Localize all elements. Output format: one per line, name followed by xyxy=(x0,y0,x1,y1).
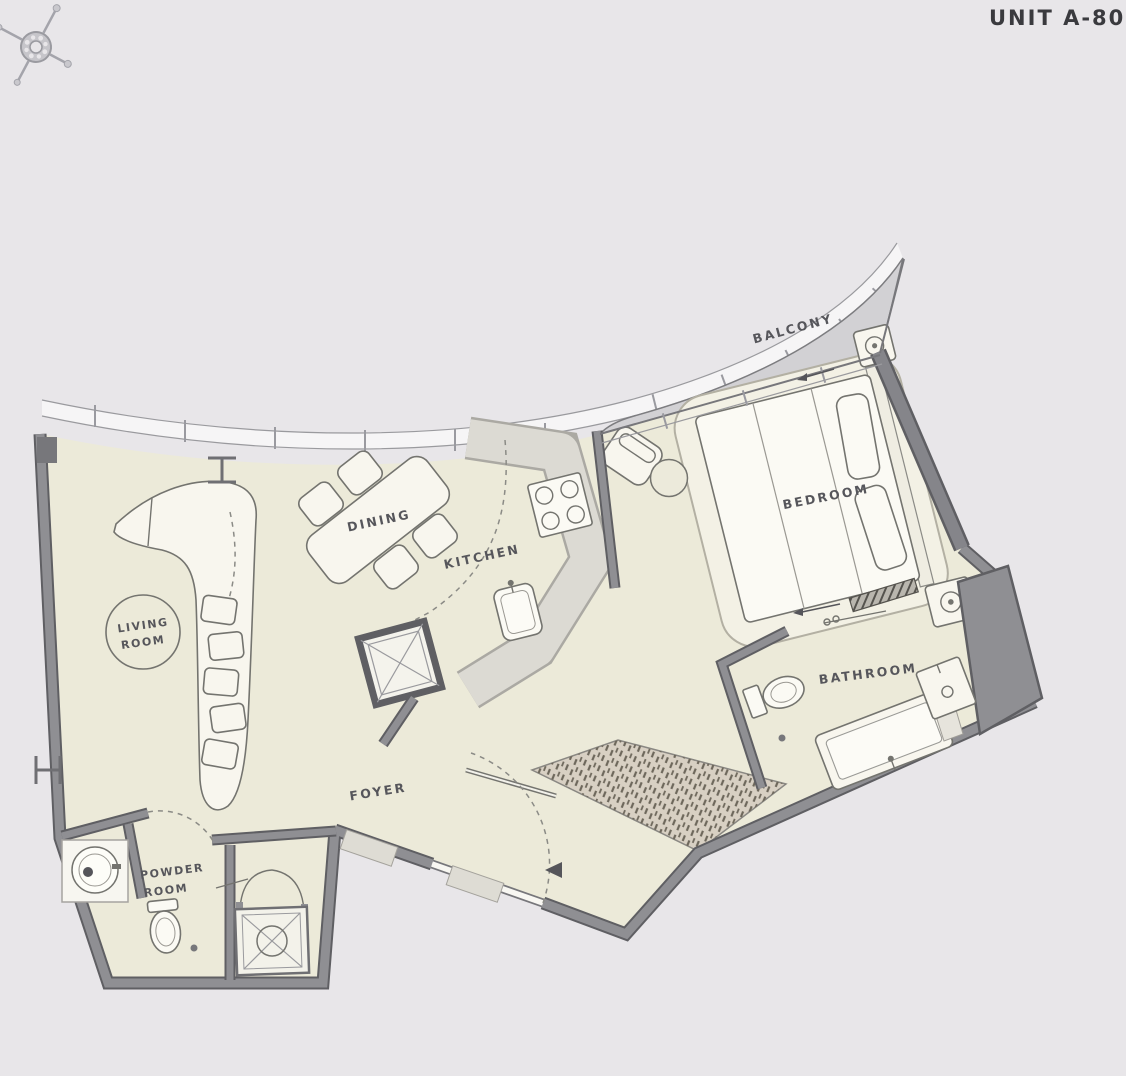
compass-rose-icon xyxy=(0,0,93,104)
stove xyxy=(527,472,592,537)
side-table xyxy=(651,460,688,497)
powder-sink xyxy=(62,840,128,902)
shower xyxy=(235,907,309,975)
floor-plan-svg: BALCONY BEDROOM LIVING ROOM DINING KITCH… xyxy=(0,0,1126,1076)
floor-plan: UNIT A-808 xyxy=(0,0,1126,1076)
service-shaft xyxy=(358,621,441,704)
